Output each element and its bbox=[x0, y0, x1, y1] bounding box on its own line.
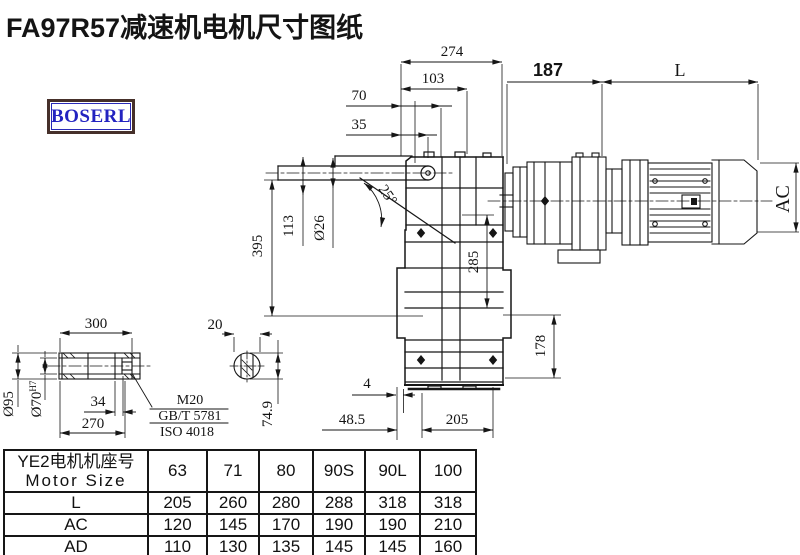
dim-dia26: Ø26 bbox=[312, 215, 328, 241]
dim-48-5: 48.5 bbox=[339, 412, 365, 428]
header-en: Motor Size bbox=[5, 471, 147, 490]
col-71: 71 bbox=[207, 450, 259, 492]
dim-187: 187 bbox=[533, 60, 563, 80]
dim-L: L bbox=[675, 60, 686, 80]
table-row-AC: AC 120 145 170 190 190 210 bbox=[4, 514, 476, 536]
motor-flange bbox=[622, 160, 648, 245]
motor-size-table: YE2电机机座号 Motor Size 63 71 80 90S 90L 100… bbox=[3, 449, 477, 555]
cell: 145 bbox=[207, 514, 259, 536]
col-80: 80 bbox=[259, 450, 313, 492]
cell: 130 bbox=[207, 536, 259, 555]
cell: 135 bbox=[259, 536, 313, 555]
bolt-markers bbox=[417, 228, 497, 365]
cell: 110 bbox=[148, 536, 207, 555]
cell: 160 bbox=[420, 536, 476, 555]
cell: 120 bbox=[148, 514, 207, 536]
dim-dia70h7: Ø70H7 bbox=[28, 380, 45, 417]
cell: 318 bbox=[420, 492, 476, 514]
col-90S: 90S bbox=[313, 450, 365, 492]
dim-34: 34 bbox=[91, 394, 107, 410]
cell: 288 bbox=[313, 492, 365, 514]
motor-side-view bbox=[488, 153, 772, 263]
note-m20: M20 bbox=[177, 393, 203, 408]
cell: 190 bbox=[365, 514, 420, 536]
cell: 170 bbox=[259, 514, 313, 536]
dim-angle-25: 25° bbox=[375, 182, 400, 208]
row-label: AD bbox=[4, 536, 148, 555]
dim-74-9: 74.9 bbox=[260, 401, 276, 427]
cell: 190 bbox=[313, 514, 365, 536]
header-label-cell: YE2电机机座号 Motor Size bbox=[4, 450, 148, 492]
table-row-L: L 205 260 280 288 318 318 bbox=[4, 492, 476, 514]
r57-ring bbox=[572, 157, 606, 250]
dim-285: 285 bbox=[466, 251, 482, 274]
cell: 210 bbox=[420, 514, 476, 536]
dim-dia95: Ø95 bbox=[1, 391, 17, 417]
dim-113: 113 bbox=[281, 215, 297, 237]
dim-270: 270 bbox=[82, 416, 105, 432]
table-header-row: YE2电机机座号 Motor Size 63 71 80 90S 90L 100 bbox=[4, 450, 476, 492]
col-90L: 90L bbox=[365, 450, 420, 492]
col-63: 63 bbox=[148, 450, 207, 492]
dim-AC: AC bbox=[772, 185, 794, 213]
cell: 280 bbox=[259, 492, 313, 514]
dim-4: 4 bbox=[363, 376, 371, 392]
dim-274: 274 bbox=[441, 44, 464, 60]
dim-178: 178 bbox=[533, 335, 549, 358]
row-label: AC bbox=[4, 514, 148, 536]
header-cn: YE2电机机座号 bbox=[5, 452, 147, 471]
dim-70: 70 bbox=[352, 88, 367, 104]
table-row-AD: AD 110 130 135 145 145 160 bbox=[4, 536, 476, 555]
dim-20: 20 bbox=[208, 317, 223, 333]
col-100: 100 bbox=[420, 450, 476, 492]
dim-103: 103 bbox=[422, 71, 445, 87]
row-label: L bbox=[4, 492, 148, 514]
dim-205: 205 bbox=[446, 412, 469, 428]
note-gb-standard: GB/T 5781 bbox=[158, 409, 221, 424]
cell: 205 bbox=[148, 492, 207, 514]
drawing-sheet: FA97R57减速机电机尺寸图纸 BOSERL bbox=[0, 0, 800, 555]
hollow-shaft-detail bbox=[48, 351, 264, 423]
cell: 145 bbox=[313, 536, 365, 555]
dim-395: 395 bbox=[250, 235, 266, 258]
cell: 260 bbox=[207, 492, 259, 514]
cell: 145 bbox=[365, 536, 420, 555]
note-iso-standard: ISO 4018 bbox=[160, 425, 214, 440]
dim-35: 35 bbox=[352, 117, 367, 133]
dim-300: 300 bbox=[85, 316, 108, 332]
cell: 318 bbox=[365, 492, 420, 514]
